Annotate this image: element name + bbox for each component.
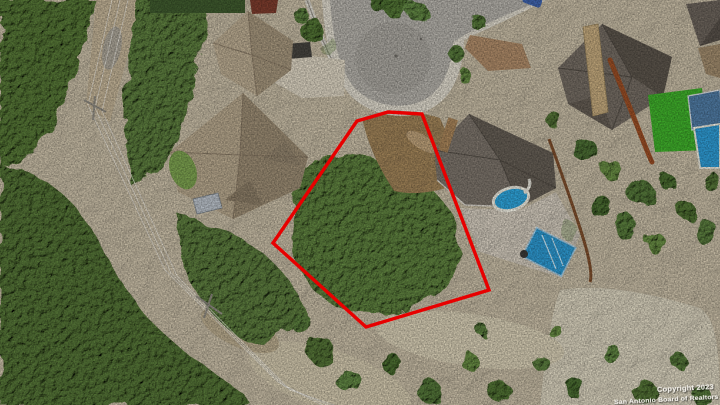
photo-grain <box>0 0 720 405</box>
aerial-photo: Copyright 2023 San Antonio Board of Real… <box>0 0 720 405</box>
aerial-photo-stage: Copyright 2023 San Antonio Board of Real… <box>0 0 720 405</box>
